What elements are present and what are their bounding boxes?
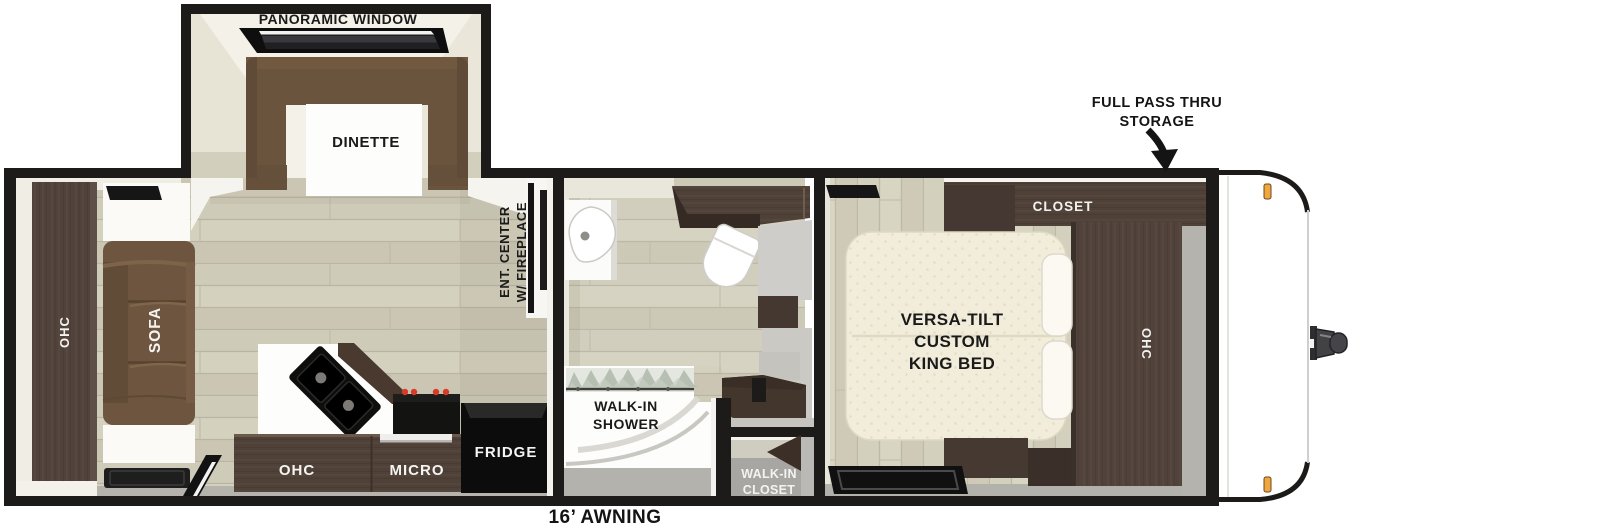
svg-text:16’ AWNING: 16’ AWNING bbox=[548, 507, 661, 526]
svg-text:CUSTOM: CUSTOM bbox=[914, 332, 990, 351]
svg-text:OHC: OHC bbox=[279, 462, 315, 479]
svg-text:SOFA: SOFA bbox=[147, 307, 164, 353]
svg-text:FRIDGE: FRIDGE bbox=[475, 444, 538, 461]
svg-text:CLOSET: CLOSET bbox=[1033, 199, 1094, 214]
svg-text:ENT. CENTER: ENT. CENTER bbox=[497, 206, 512, 298]
svg-text:WALK-IN: WALK-IN bbox=[741, 467, 797, 481]
svg-text:MICRO: MICRO bbox=[390, 462, 445, 479]
svg-text:KING BED: KING BED bbox=[909, 354, 995, 373]
svg-text:VERSA-TILT: VERSA-TILT bbox=[901, 310, 1004, 329]
svg-text:FULL PASS THRU: FULL PASS THRU bbox=[1092, 95, 1223, 111]
svg-text:OHC: OHC bbox=[1139, 328, 1154, 360]
svg-text:STORAGE: STORAGE bbox=[1120, 114, 1195, 130]
svg-text:WALK-IN: WALK-IN bbox=[594, 398, 657, 414]
svg-text:W/ FIREPLACE: W/ FIREPLACE bbox=[514, 202, 529, 302]
svg-text:SHOWER: SHOWER bbox=[593, 416, 659, 432]
svg-text:OHC: OHC bbox=[57, 316, 72, 348]
svg-text:CLOSET: CLOSET bbox=[743, 483, 796, 497]
svg-text:DINETTE: DINETTE bbox=[332, 134, 400, 151]
